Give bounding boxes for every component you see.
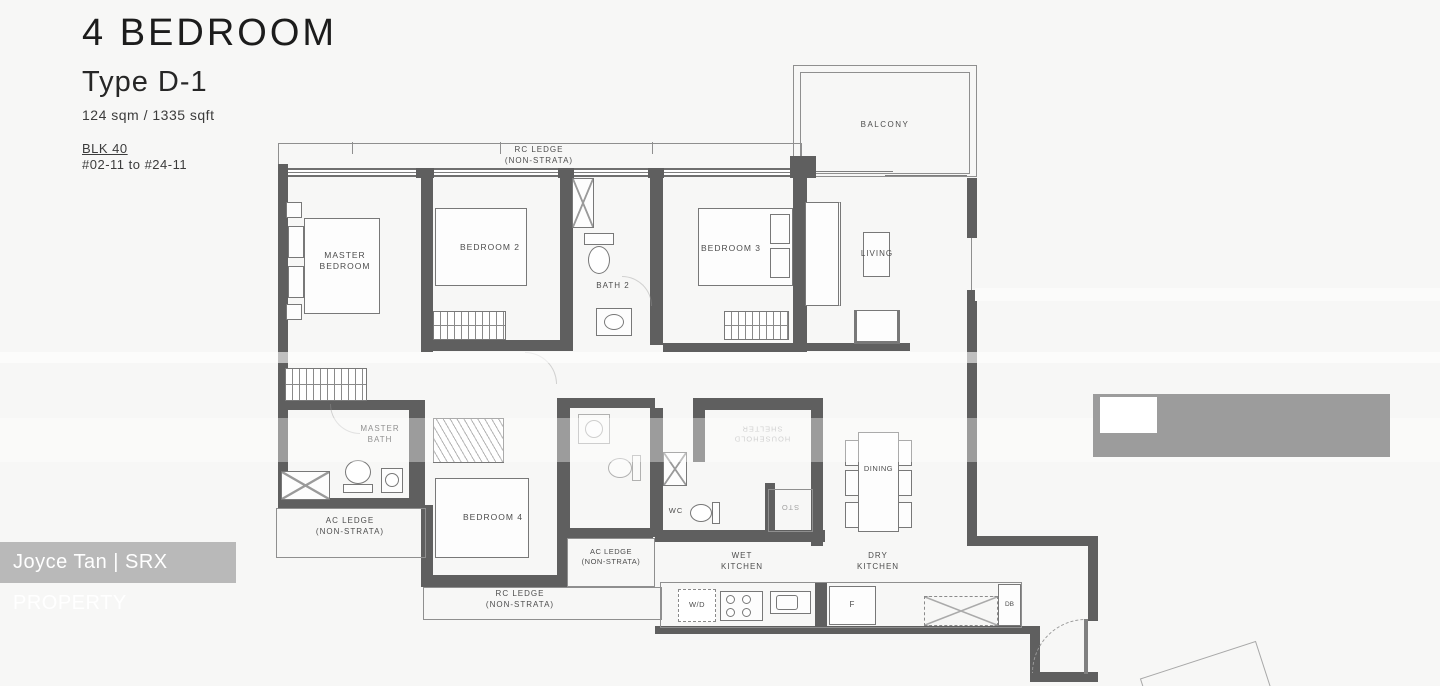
basin-bowl xyxy=(604,314,624,330)
sink-basin xyxy=(776,595,798,610)
balcony-sliding-door xyxy=(813,171,893,172)
tv-console xyxy=(805,202,841,306)
wall xyxy=(557,398,655,408)
basin-bowl xyxy=(585,420,603,438)
wall xyxy=(1088,546,1098,621)
wet-kitchen-label: WET KITCHEN xyxy=(712,551,772,573)
dining-chair xyxy=(898,440,912,466)
nightstand xyxy=(286,304,302,320)
wc-label: WC xyxy=(663,506,689,516)
living-label: LIVING xyxy=(851,249,903,260)
window xyxy=(288,168,416,177)
balcony-sliding-door xyxy=(885,175,967,176)
door-arc xyxy=(525,352,557,384)
unit-range: #02-11 to #24-11 xyxy=(82,157,187,172)
overhead-cabinet xyxy=(924,596,998,626)
bedroom2-label: BEDROOM 2 xyxy=(450,242,530,253)
pillow xyxy=(288,266,304,298)
window-gap xyxy=(967,238,977,290)
wall-right xyxy=(967,178,977,546)
watermark-badge: Joyce Tan | SRX PROPERTY xyxy=(0,542,236,583)
dining-chair xyxy=(898,470,912,496)
shower xyxy=(572,178,594,228)
toilet-bowl xyxy=(345,460,371,484)
shower xyxy=(663,452,687,486)
dining-chair xyxy=(898,502,912,528)
wardrobe xyxy=(433,418,504,463)
pillow xyxy=(770,214,790,244)
fridge-label: F xyxy=(829,600,876,611)
burner xyxy=(726,608,735,617)
burner xyxy=(726,595,735,604)
window-line xyxy=(971,238,972,290)
entry-door-leaf xyxy=(1084,619,1088,674)
wall xyxy=(409,402,425,505)
wall xyxy=(421,575,567,587)
toilet-tank xyxy=(343,484,373,493)
toilet-tank xyxy=(712,502,720,524)
basin-bowl xyxy=(385,473,399,487)
store-label: STO xyxy=(772,502,808,512)
wall xyxy=(557,533,567,585)
wardrobe xyxy=(433,311,506,340)
wall xyxy=(967,536,1098,546)
window xyxy=(574,168,648,177)
toilet-bowl xyxy=(608,458,632,478)
sofa xyxy=(854,310,900,344)
db-label: DB xyxy=(998,601,1021,610)
wall xyxy=(557,402,570,533)
master-bath-label: MASTER BATH xyxy=(352,424,408,446)
wardrobe xyxy=(724,311,789,340)
window xyxy=(434,168,558,177)
site-outline-partial xyxy=(1140,641,1278,686)
dry-kitchen-label: DRY KITCHEN xyxy=(848,551,908,573)
wall-post xyxy=(790,156,816,178)
wall xyxy=(806,343,910,351)
rc-ledge-top-label: RC LEDGE (NON-STRATA) xyxy=(278,145,800,167)
wall xyxy=(650,176,663,345)
door-arc xyxy=(622,276,652,306)
burner xyxy=(742,608,751,617)
unit-type: Type D-1 xyxy=(82,66,208,99)
artifact-band xyxy=(0,352,1440,363)
door-arc xyxy=(330,404,360,434)
burner xyxy=(742,595,751,604)
master-bedroom-label: MASTER BEDROOM xyxy=(306,250,384,273)
floor-plan-page: 4 BEDROOM Type D-1 124 sqm / 1335 sqft B… xyxy=(0,0,1440,686)
toilet-bowl xyxy=(588,246,610,274)
bedroom3-label: BEDROOM 3 xyxy=(695,243,767,254)
wall xyxy=(421,176,433,352)
unit-area: 124 sqm / 1335 sqft xyxy=(82,107,214,123)
dining-chair xyxy=(845,440,859,466)
pillow xyxy=(770,248,790,278)
block-number: BLK 40 xyxy=(82,141,128,156)
wardrobe xyxy=(285,368,367,401)
dining-label: DINING xyxy=(857,464,900,474)
pillow xyxy=(288,226,304,258)
bedroom4-label: BEDROOM 4 xyxy=(455,512,531,523)
balcony-label: BALCONY xyxy=(845,120,925,131)
artifact-gray-block-inset xyxy=(1100,397,1157,433)
artifact-band xyxy=(975,288,1440,301)
toilet-bowl xyxy=(690,504,712,522)
nightstand xyxy=(286,202,302,218)
wall xyxy=(650,408,663,537)
wall xyxy=(421,340,573,351)
dining-table xyxy=(858,432,899,532)
entry-door-arc xyxy=(1032,619,1086,673)
toilet-tank xyxy=(584,233,614,245)
shower xyxy=(281,471,330,500)
ac-ledge-left-label: AC LEDGE (NON-STRATA) xyxy=(300,516,400,538)
wall xyxy=(663,343,806,352)
window xyxy=(664,168,790,177)
dining-chair xyxy=(845,502,859,528)
hs-wall-left xyxy=(693,410,705,462)
toilet-tank xyxy=(632,455,641,481)
rc-ledge-bottom-label: RC LEDGE (NON-STRATA) xyxy=(440,589,600,611)
washer-dryer-label: W/D xyxy=(678,600,716,610)
household-shelter-label: HOUSEHOLD SHELTER xyxy=(710,423,814,443)
wall xyxy=(557,528,653,538)
ac-ledge-mid-label: AC LEDGE (NON-STRATA) xyxy=(570,547,652,567)
hs-wall-top xyxy=(693,398,823,410)
page-title: 4 BEDROOM xyxy=(82,12,337,55)
